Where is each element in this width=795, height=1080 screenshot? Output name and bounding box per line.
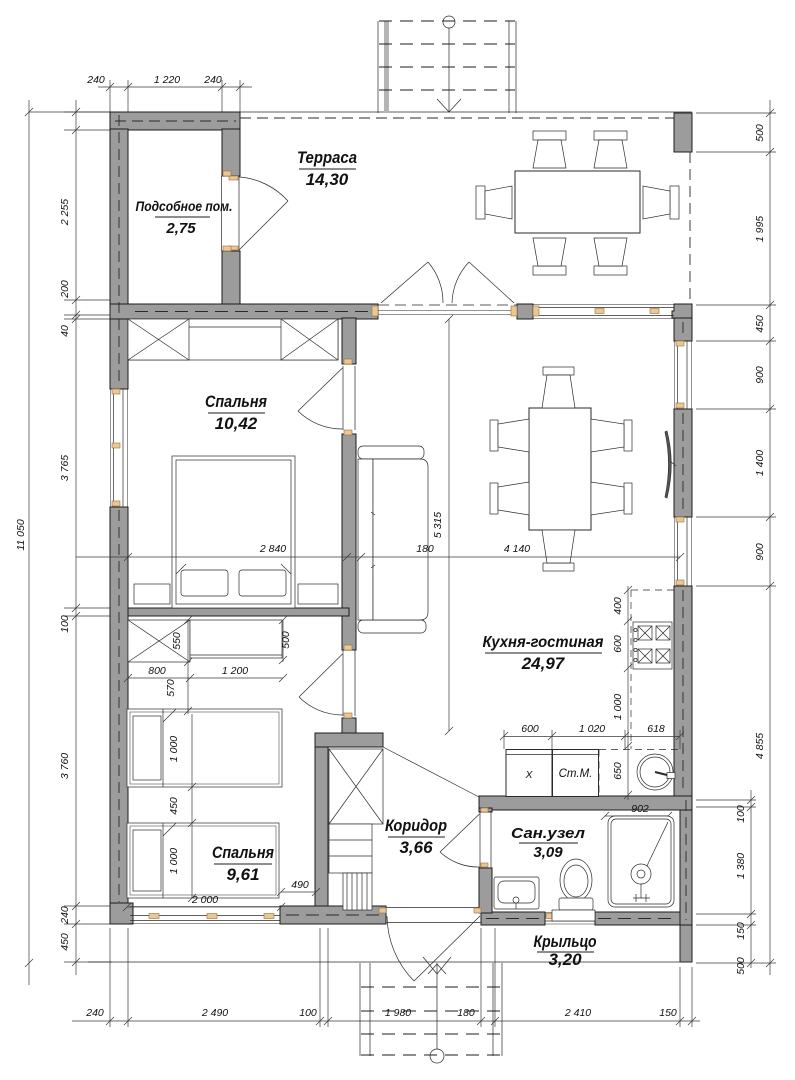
svg-text:4 855: 4 855 <box>754 733 766 759</box>
svg-text:4 140: 4 140 <box>504 543 530 555</box>
svg-text:Терраса: Терраса <box>297 148 357 167</box>
svg-text:500: 500 <box>735 957 747 975</box>
svg-text:650: 650 <box>612 762 624 780</box>
svg-text:902: 902 <box>631 803 649 815</box>
svg-text:150: 150 <box>735 922 747 940</box>
svg-text:Крыльцо: Крыльцо <box>534 932 597 951</box>
svg-text:450: 450 <box>59 933 71 951</box>
svg-text:180: 180 <box>416 543 434 555</box>
svg-text:3 765: 3 765 <box>59 455 71 481</box>
svg-text:Х: Х <box>524 769 533 781</box>
svg-text:14,30: 14,30 <box>306 170 349 189</box>
svg-text:Кухня-гостиная: Кухня-гостиная <box>483 634 604 651</box>
svg-text:1 020: 1 020 <box>579 723 605 735</box>
svg-text:618: 618 <box>647 723 665 735</box>
svg-text:5 315: 5 315 <box>432 512 444 538</box>
svg-text:2 000: 2 000 <box>191 894 218 906</box>
svg-text:3 760: 3 760 <box>59 753 71 779</box>
svg-text:100: 100 <box>735 805 747 823</box>
svg-text:100: 100 <box>59 615 71 633</box>
svg-text:Сан.узел: Сан.узел <box>511 825 586 842</box>
svg-text:11 050: 11 050 <box>15 519 27 550</box>
svg-text:1 000: 1 000 <box>168 848 180 874</box>
svg-text:2 255: 2 255 <box>59 199 71 226</box>
svg-text:240: 240 <box>59 906 71 925</box>
svg-text:40: 40 <box>59 325 71 337</box>
svg-text:3,66: 3,66 <box>399 838 433 857</box>
svg-text:9,61: 9,61 <box>226 865 259 884</box>
svg-text:3,20: 3,20 <box>548 950 582 969</box>
svg-text:Ст.М.: Ст.М. <box>559 768 593 780</box>
svg-text:570: 570 <box>165 679 177 697</box>
svg-text:Коридор: Коридор <box>385 816 447 835</box>
svg-text:1 400: 1 400 <box>754 450 766 476</box>
svg-text:550: 550 <box>171 632 183 650</box>
svg-text:180: 180 <box>457 1007 475 1019</box>
svg-text:Подсобное пом.: Подсобное пом. <box>136 198 233 214</box>
svg-text:Спальня: Спальня <box>205 392 267 411</box>
svg-text:2,75: 2,75 <box>165 220 196 237</box>
svg-text:500: 500 <box>280 631 292 649</box>
svg-text:600: 600 <box>521 723 539 735</box>
svg-text:400: 400 <box>612 597 624 615</box>
svg-text:500: 500 <box>754 124 766 142</box>
svg-text:Спальня: Спальня <box>212 843 274 862</box>
svg-text:3,09: 3,09 <box>533 844 563 861</box>
svg-text:1 995: 1 995 <box>754 216 766 242</box>
svg-text:2 490: 2 490 <box>201 1007 228 1019</box>
svg-text:10,42: 10,42 <box>215 414 258 433</box>
svg-text:2 410: 2 410 <box>564 1007 591 1019</box>
svg-text:1 980: 1 980 <box>385 1007 411 1019</box>
svg-text:150: 150 <box>659 1007 677 1019</box>
svg-text:24,97: 24,97 <box>521 654 566 673</box>
svg-text:900: 900 <box>754 543 766 561</box>
svg-text:450: 450 <box>754 315 766 333</box>
svg-text:800: 800 <box>148 665 166 677</box>
svg-text:1 380: 1 380 <box>735 853 747 879</box>
svg-text:450: 450 <box>168 797 180 815</box>
svg-text:200: 200 <box>59 280 71 299</box>
svg-text:1 220: 1 220 <box>154 74 180 86</box>
svg-text:1 200: 1 200 <box>222 665 248 677</box>
svg-text:240: 240 <box>86 74 105 86</box>
svg-text:1 000: 1 000 <box>168 736 180 762</box>
svg-text:100: 100 <box>299 1007 317 1019</box>
svg-text:1 000: 1 000 <box>612 694 624 720</box>
svg-text:600: 600 <box>612 635 624 653</box>
svg-text:900: 900 <box>754 366 766 384</box>
svg-text:240: 240 <box>85 1007 104 1019</box>
svg-text:2 840: 2 840 <box>259 543 286 555</box>
svg-text:240: 240 <box>203 74 222 86</box>
svg-text:490: 490 <box>291 879 309 891</box>
